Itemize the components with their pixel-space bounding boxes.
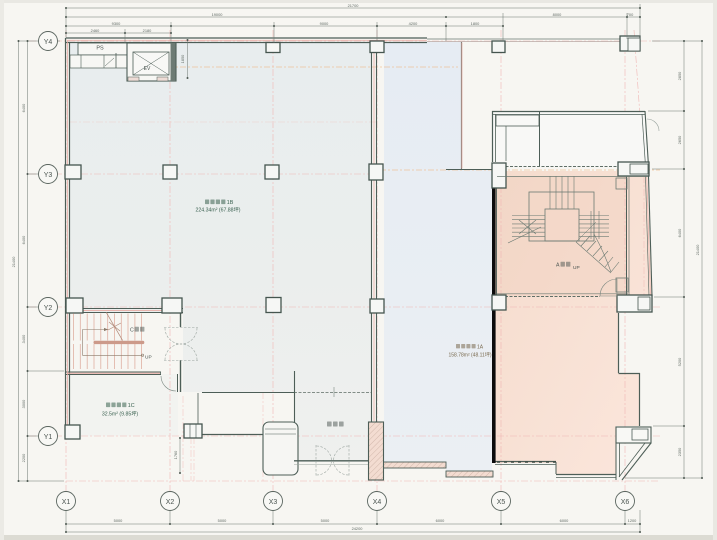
svg-text:21400: 21400	[695, 244, 700, 256]
svg-text:2200: 2200	[21, 453, 26, 462]
svg-text:1200: 1200	[628, 518, 637, 523]
svg-text:PS: PS	[96, 46, 104, 52]
svg-text:Y2: Y2	[44, 305, 53, 312]
svg-text:2180: 2180	[143, 28, 152, 33]
svg-text:224.34m² (67.88坪): 224.34m² (67.88坪)	[196, 206, 241, 214]
svg-text:1B: 1B	[227, 200, 234, 206]
svg-text:32.5m² (9.85坪): 32.5m² (9.85坪)	[102, 410, 139, 418]
svg-text:2350: 2350	[677, 447, 682, 456]
svg-text:24200: 24200	[352, 526, 364, 531]
svg-text:1850: 1850	[180, 54, 185, 63]
svg-text:2460: 2460	[91, 28, 100, 33]
svg-text:5000: 5000	[114, 518, 123, 523]
svg-text:2850: 2850	[677, 71, 682, 80]
svg-text:3000: 3000	[21, 399, 26, 408]
svg-text:9000: 9000	[320, 21, 329, 26]
svg-text:3400: 3400	[21, 334, 26, 343]
svg-text:5000: 5000	[321, 518, 330, 523]
svg-text:6400: 6400	[21, 103, 26, 112]
svg-text:C: C	[130, 328, 134, 334]
svg-text:4200: 4200	[409, 21, 418, 26]
svg-text:5200: 5200	[677, 357, 682, 366]
svg-text:8000: 8000	[553, 12, 562, 17]
svg-text:X6: X6	[621, 499, 630, 506]
svg-text:UP: UP	[573, 265, 580, 271]
svg-text:6000: 6000	[436, 518, 445, 523]
svg-text:Y4: Y4	[44, 39, 53, 46]
svg-text:6000: 6000	[560, 518, 569, 523]
svg-text:1760: 1760	[173, 450, 178, 459]
svg-text:EV: EV	[144, 66, 151, 72]
svg-text:1A: 1A	[477, 344, 484, 350]
svg-text:UP: UP	[145, 355, 152, 361]
svg-text:1800: 1800	[471, 21, 480, 26]
svg-text:A: A	[556, 263, 560, 269]
svg-text:1C: 1C	[128, 403, 135, 409]
svg-text:158.78m² (48.11坪): 158.78m² (48.11坪)	[449, 351, 492, 358]
svg-text:X3: X3	[269, 499, 278, 506]
svg-text:Y3: Y3	[44, 172, 53, 179]
svg-text:5000: 5000	[218, 518, 227, 523]
svg-text:2650: 2650	[677, 135, 682, 144]
svg-text:19000: 19000	[212, 12, 224, 17]
svg-text:700: 700	[627, 12, 634, 17]
svg-text:Y1: Y1	[44, 434, 53, 441]
svg-text:X5: X5	[497, 499, 506, 506]
svg-text:X2: X2	[166, 499, 175, 506]
svg-text:21700: 21700	[348, 3, 360, 8]
svg-text:X4: X4	[373, 499, 382, 506]
svg-text:9300: 9300	[112, 21, 121, 26]
svg-text:6400: 6400	[677, 228, 682, 237]
svg-text:21400: 21400	[11, 256, 16, 268]
svg-text:6400: 6400	[21, 235, 26, 244]
svg-text:X1: X1	[62, 499, 71, 506]
